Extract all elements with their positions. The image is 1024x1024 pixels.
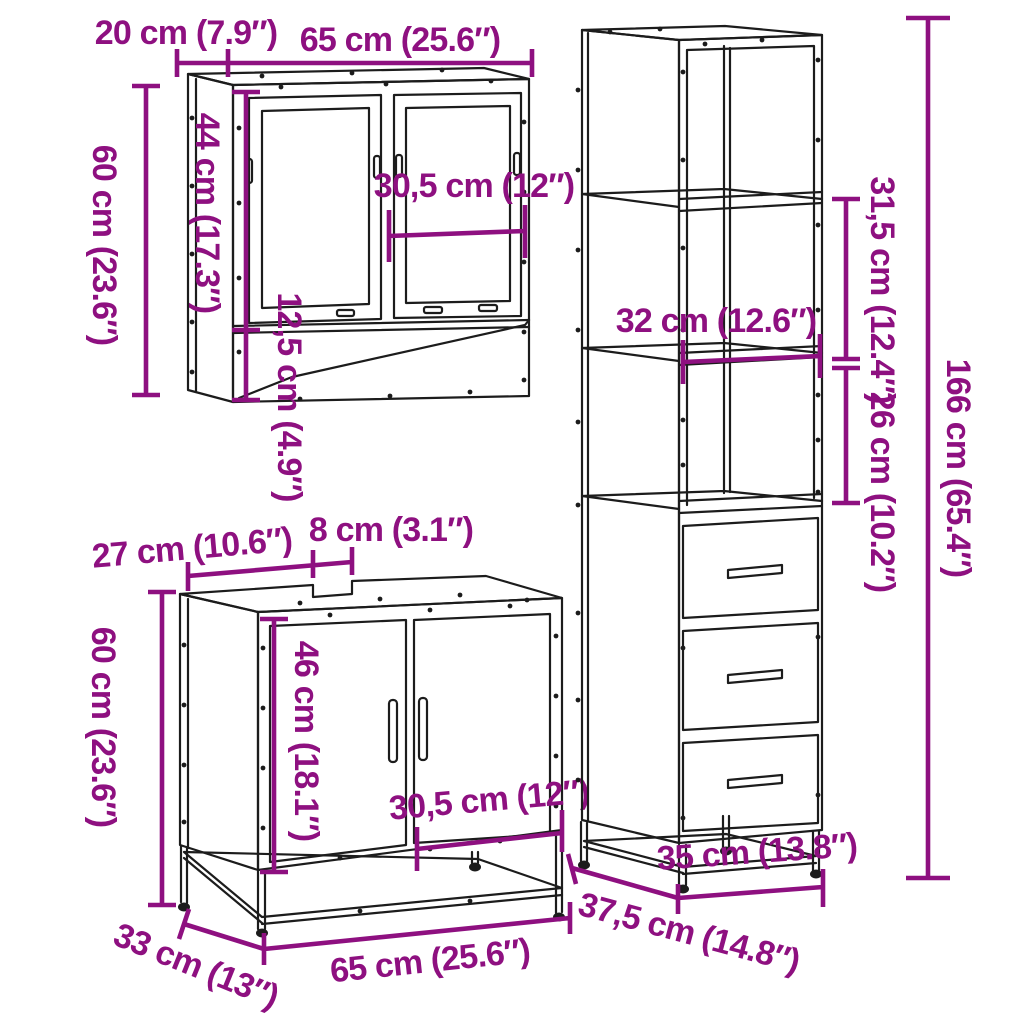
tall-cabinet-drawing [576, 26, 822, 894]
mirror-left-door [249, 95, 381, 323]
dim-label-sink-notch-width: 8 cm (3.1″) [309, 511, 473, 549]
dim-label-mirror-inner-width: 30,5 cm (12″) [374, 167, 575, 205]
dim-line-tall-middle-section [832, 368, 860, 503]
tall-drawer-3 [683, 735, 818, 831]
dim-label-mirror-shelf-height: 12,5 cm (4.9″) [270, 292, 308, 501]
tall-cabinet-screws [576, 27, 822, 894]
mirror-door-slot [337, 310, 354, 316]
sink-cabinet-dimension-lines [148, 547, 570, 965]
mirror-door-slot [424, 307, 442, 313]
dim-label-tall-total-height: 166 cm (65.4″) [939, 359, 977, 578]
dim-label-mirror-top-depth: 20 cm (7.9″) [95, 14, 277, 52]
dim-label-tall-width: 35 cm (13.8″) [656, 826, 859, 878]
dim-label-mirror-height: 60 cm (23.6″) [85, 145, 123, 346]
dim-line-mirror-door-height [232, 92, 260, 400]
tall-drawer-2 [683, 623, 818, 730]
dim-line-mirror-inner-width [389, 205, 525, 262]
dim-line-tall-upper-section [832, 199, 860, 359]
dim-label-tall-shelf-width: 32 cm (12.6″) [616, 302, 817, 340]
sink-base-frame-rails [184, 852, 562, 924]
tall-drawer-2-handle [728, 670, 782, 683]
sink-door-handle [389, 700, 397, 762]
dim-line-tall-shelf-width [683, 334, 820, 384]
tall-cabinet-side-panel [582, 30, 679, 843]
mirror-left-door-mirror [262, 108, 369, 308]
sink-cabinet-drawing [178, 576, 565, 938]
sink-cabinet-side-panel [180, 594, 258, 870]
dim-label-sink-door-height: 46 cm (18.1″) [287, 641, 325, 842]
dim-label-tall-depth: 37,5 cm (14.8″) [574, 885, 803, 981]
tall-cabinet-back-corner-edge [724, 46, 730, 493]
furniture-dimension-diagram: 20 cm (7.9″) 65 cm (25.6″) 60 cm (23.6″)… [0, 0, 1024, 1024]
dim-line-tall-width [678, 869, 823, 914]
dim-label-mirror-top-width: 65 cm (25.6″) [300, 21, 501, 59]
diagram-canvas: 20 cm (7.9″) 65 cm (25.6″) 60 cm (23.6″)… [0, 0, 1024, 1024]
tall-shelf-upper [582, 189, 822, 211]
dim-line-sink-height [148, 592, 176, 905]
tall-drawer-3-handle [728, 775, 782, 788]
dim-label-tall-upper-section: 31,5 cm (12.4″) [863, 176, 901, 403]
sink-base-leg-back-right [472, 852, 478, 863]
dim-line-sink-door-height [260, 619, 288, 872]
dim-line-mirror-height [132, 86, 160, 395]
tall-cabinet-front-frame [679, 35, 822, 843]
mirror-door-slot [479, 305, 497, 311]
sink-cabinet-screws [178, 593, 565, 938]
mirror-right-door [394, 93, 521, 318]
dim-label-mirror-door-height: 44 cm (17.3″) [188, 113, 226, 314]
dim-label-sink-height: 60 cm (23.6″) [84, 627, 122, 828]
tall-shelf-drawer-top [582, 491, 822, 513]
dim-label-tall-middle-section: 26 cm (10.2″) [863, 392, 901, 593]
sink-door-handle [419, 698, 427, 760]
tall-drawer-1-handle [728, 565, 782, 578]
tall-cabinet-front-inner-frame [687, 46, 814, 505]
